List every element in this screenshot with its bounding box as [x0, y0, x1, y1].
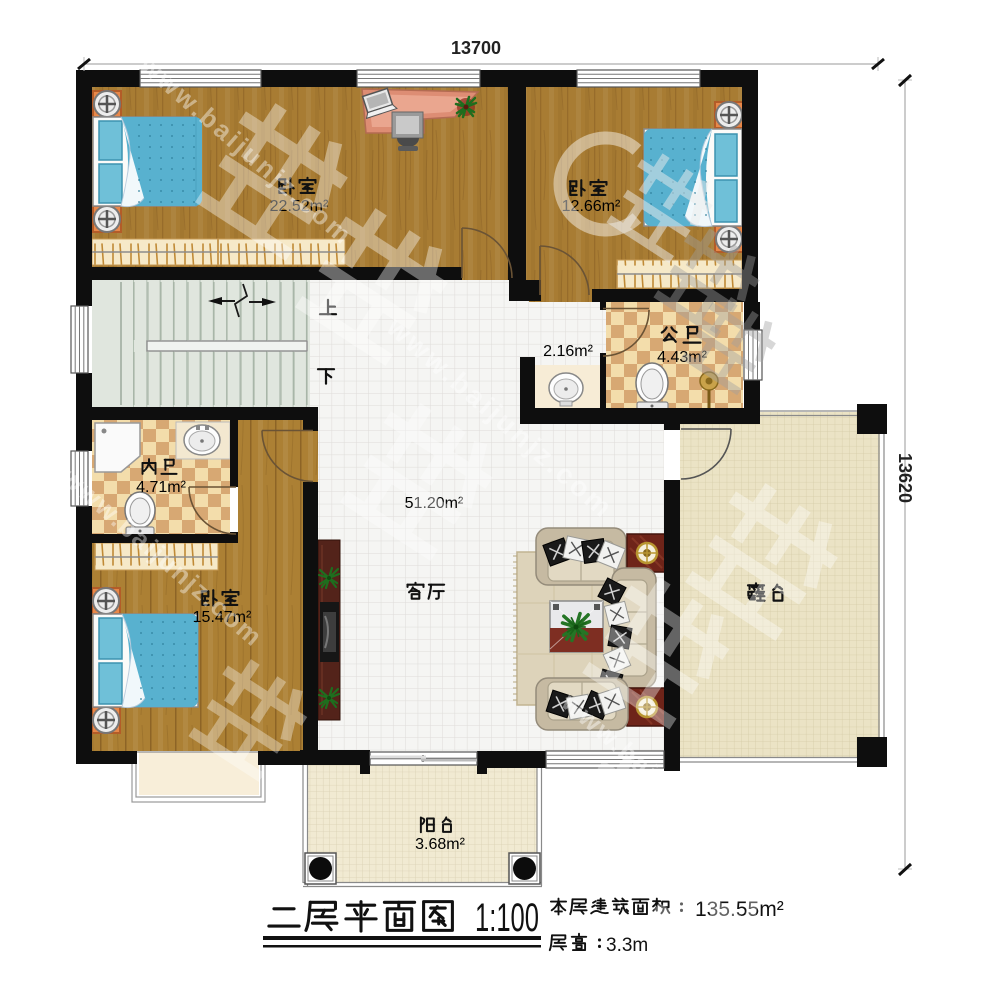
- svg-text:13700: 13700: [451, 38, 501, 58]
- svg-text:1:100: 1:100: [475, 896, 539, 940]
- svg-text:13620: 13620: [895, 453, 915, 503]
- svg-text:3.3m: 3.3m: [606, 935, 648, 956]
- svg-text:3.68m²: 3.68m²: [415, 836, 465, 853]
- svg-text:2.16m²: 2.16m²: [543, 343, 593, 360]
- svg-text:4.71m²: 4.71m²: [136, 479, 186, 496]
